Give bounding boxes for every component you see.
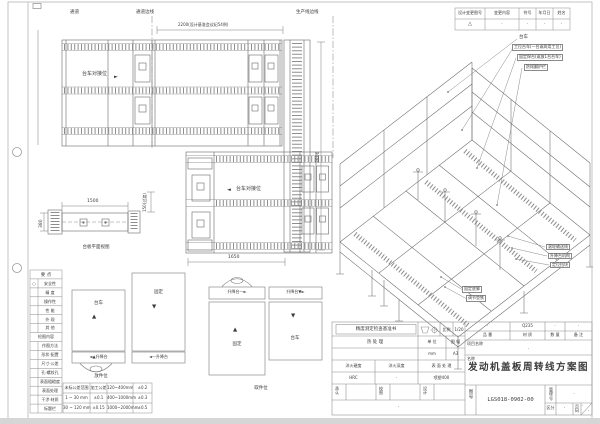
- legend-header: 要 点: [30, 273, 62, 278]
- iso-callout: 台车: [519, 35, 528, 40]
- design-label: 设计: [422, 387, 428, 396]
- part-no-value: ·: [465, 324, 510, 329]
- tolerance-cell: ±0.1: [90, 396, 107, 401]
- qty-header: 数 量: [545, 333, 565, 338]
- tolerance-cell: 未标公差范围: [63, 386, 90, 391]
- drawing-no-label: 图号: [468, 390, 474, 400]
- page-top-value: ·: [582, 404, 583, 409]
- tolerance-cell: ±0.5: [133, 406, 152, 411]
- drawing-no-value: LGS018-0902-00: [476, 397, 545, 403]
- tolerance-cell: 30 ~ 120 mm: [63, 406, 90, 411]
- iso-callout: 定位挡块: [550, 262, 570, 269]
- plan-top-dock-arrow-icon: ►: [114, 75, 118, 81]
- scale-value: 1/20: [453, 328, 465, 333]
- check-standard-title: 精度测定检查基准书: [336, 327, 416, 332]
- qty-value: ·: [545, 324, 565, 329]
- schematic-lift-label: ◄▲升降台: [72, 355, 125, 360]
- tolerance-cell: 1 ~ 30 mm: [63, 396, 90, 401]
- dim-3800-text: 3800: [316, 152, 321, 163]
- schematic-fixed-label: 固定: [216, 342, 258, 347]
- drawing-sheet: 通道 通道边线 2200(设计基准会议纪54例) 生产线边线 台车对接位 ► 3…: [0, 0, 600, 424]
- schematic-lift-label: 升降台—►: [209, 290, 265, 295]
- pick-position-caption: 取件位: [246, 386, 276, 391]
- schematic-boxes: [72, 273, 322, 375]
- remark-value: ·: [565, 324, 592, 329]
- scale-label: 比例: [440, 328, 453, 333]
- plan-top-dock-label: 台车对接位: [82, 72, 107, 78]
- iso-callout: 升降台机构: [548, 253, 572, 260]
- dimension-lines: [38, 16, 333, 266]
- depth-value: ·: [375, 376, 418, 381]
- note-value: ·: [332, 405, 465, 410]
- scan-edge-shadow: [0, 418, 600, 424]
- unit-label: 单 位: [418, 340, 446, 345]
- hardness-value: HRC: [332, 376, 375, 381]
- side-view: [48, 210, 140, 234]
- tolerance-cell: 120~400mm: [107, 386, 133, 391]
- revision-header: 变更内容: [485, 11, 519, 16]
- heat-treatment-label: 热 处 理: [332, 340, 418, 345]
- arrow-down-icon: ▼: [291, 313, 295, 319]
- legend-item: 形状·配置: [38, 353, 62, 358]
- legend-item: 尺寸·公差: [38, 362, 62, 367]
- legend-item: 作图方法: [38, 344, 62, 349]
- tolerance-cell: 加工公差: [90, 386, 107, 391]
- mgmt-no-label: 管理号: [548, 388, 554, 402]
- sheet-size-value: A3: [446, 352, 465, 357]
- hardness-label: 淬火硬度: [332, 364, 375, 369]
- schematic-cart-label: 台车: [82, 301, 115, 306]
- schematic-fixed-label: 固定: [142, 290, 175, 295]
- arrow-up-icon: ▲: [233, 327, 237, 333]
- arrow-down-icon: ▼: [152, 304, 156, 310]
- mgmt-no-value: ·: [556, 392, 592, 397]
- revision-cell: ·: [553, 22, 570, 27]
- revision-header: 年月日: [536, 11, 553, 16]
- class-label: 区分: [545, 406, 556, 411]
- check-label: 校图: [378, 387, 384, 396]
- dim-2200-text: 2200(设计基准会议纪54例): [178, 23, 228, 28]
- tolerance-cell: ±0.3: [133, 396, 152, 401]
- part-no-header: 品 番: [465, 333, 510, 338]
- depth-label: 淬火深度: [375, 364, 418, 369]
- remark-header: 备 注: [565, 333, 592, 338]
- plan-mid-dock-label: 台车对接位: [236, 187, 261, 193]
- unit-value: mm: [418, 352, 446, 357]
- legend-item: 安全性: [38, 282, 62, 287]
- revision-header: 设计变更图号: [455, 11, 485, 16]
- tolerance-cell: 400~1000mm: [107, 396, 133, 401]
- schematic-lift-label: ◄—升降台: [132, 355, 185, 360]
- legend-circle-icon: ○: [30, 282, 38, 287]
- approve-label: 承认: [334, 387, 340, 396]
- label-aisle: 通道: [70, 10, 79, 15]
- legend-item: 干涉·材质: [38, 398, 62, 403]
- revision-cell: △: [455, 22, 485, 28]
- material-value: Q235: [510, 324, 545, 329]
- project-name-value: ·: [465, 347, 592, 352]
- cad-linework: [0, 0, 600, 424]
- legend-item: 孔·螺纹孔: [38, 371, 62, 376]
- dim-380-text: 380: [39, 219, 44, 228]
- plan-mid-dock-arrow-icon: ◄: [227, 188, 231, 194]
- legend-item: 性 能: [38, 309, 62, 314]
- tolerance-cell: 1000~2000mm: [107, 406, 133, 411]
- legend-item: 操作性: [38, 300, 62, 305]
- surface-value: 喷塑400: [418, 376, 465, 381]
- revision-header: 符号: [519, 11, 536, 16]
- material-header: 材 质: [510, 333, 545, 338]
- revision-cell: ·: [485, 22, 519, 27]
- name-label: 名称: [467, 357, 475, 362]
- label-aisle-edge: 通道边线: [136, 10, 154, 15]
- page-bottom-value: ·: [588, 409, 589, 414]
- sheet-size-label: 图 幅: [446, 340, 465, 345]
- dim-150-text: 150(过渡): [143, 193, 148, 212]
- iso-callout: 固定焊台(或放1台台车): [517, 54, 563, 61]
- first-angle-projection-icon: [421, 326, 439, 334]
- schematic-cart-label: 台车: [272, 336, 318, 341]
- schematic-lift-label: 升降台▼►: [269, 290, 322, 295]
- iso-callout: 固定底脚: [462, 286, 482, 293]
- iso-callout: 滚轮输送线: [546, 244, 570, 251]
- iso-callout: 调节垫铁: [466, 295, 486, 302]
- arrow-up-icon: ▲: [92, 314, 96, 320]
- drawing-title: 发动机盖板周转线方案图: [465, 363, 592, 374]
- page-label: 页码: [575, 405, 580, 414]
- revision-header: 姓名: [553, 11, 570, 16]
- legend-item: 表面处理: [38, 389, 62, 394]
- label-production-edge: 生产线边线: [296, 10, 319, 15]
- place-position-caption: 放件位: [86, 374, 116, 379]
- project-name-label: 项目名称: [467, 342, 483, 347]
- tolerance-cell: ±0.2: [133, 386, 152, 391]
- revision-cell: ·: [536, 22, 553, 27]
- legend-item: 标题栏: [38, 407, 62, 412]
- class-value: ·: [556, 406, 573, 411]
- dim-1650-text: 1650: [228, 255, 239, 260]
- dim-1500-text: 1500: [87, 199, 98, 204]
- legend-item: 外 观: [38, 318, 62, 323]
- iso-callout: 防倾翻护栏: [524, 64, 548, 71]
- legend-item: 表面粗糙度: [38, 380, 62, 385]
- legend-item: 其 他: [38, 326, 62, 331]
- iso-callout: 工位台车(一台或两用工位): [512, 44, 563, 51]
- legend-item: 精 度: [38, 291, 62, 296]
- legend-header: 检图内容: [30, 335, 62, 340]
- revision-cell: ·: [519, 22, 536, 27]
- tolerance-cell: ±0.15: [90, 406, 107, 411]
- surface-label: 表 面 处 理: [418, 364, 465, 369]
- callout-leaders: [440, 39, 549, 299]
- side-view-caption: 台板平面视图: [72, 245, 120, 250]
